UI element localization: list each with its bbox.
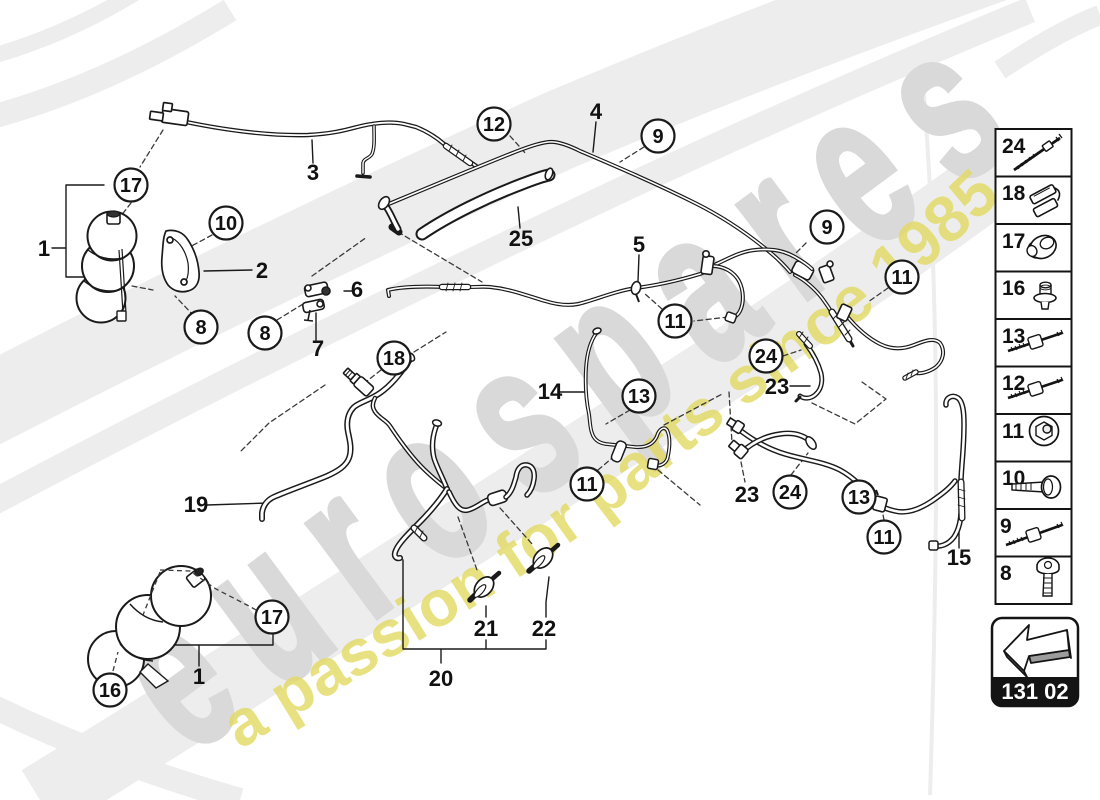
svg-text:12: 12 (1002, 372, 1025, 395)
svg-text:25: 25 (509, 226, 533, 251)
svg-text:24: 24 (1002, 135, 1026, 158)
svg-text:3: 3 (307, 160, 319, 185)
svg-text:21: 21 (474, 616, 498, 641)
svg-text:12: 12 (483, 114, 505, 136)
svg-text:17: 17 (261, 607, 283, 629)
svg-text:11: 11 (873, 527, 894, 549)
svg-text:11: 11 (576, 474, 597, 496)
svg-text:13: 13 (628, 386, 650, 408)
svg-text:13: 13 (848, 487, 870, 509)
svg-text:14: 14 (538, 379, 563, 404)
svg-text:1: 1 (38, 236, 50, 261)
svg-text:5: 5 (633, 232, 645, 257)
svg-text:131 02: 131 02 (1001, 679, 1068, 704)
svg-text:8: 8 (195, 317, 206, 339)
svg-text:23: 23 (735, 482, 759, 507)
svg-text:9: 9 (821, 217, 832, 239)
svg-text:23: 23 (765, 374, 789, 399)
svg-text:8: 8 (259, 323, 270, 345)
svg-text:22: 22 (532, 616, 556, 641)
svg-text:24: 24 (755, 346, 778, 368)
svg-text:9: 9 (1000, 515, 1012, 538)
svg-text:11: 11 (664, 311, 685, 333)
svg-text:7: 7 (312, 336, 324, 361)
svg-text:17: 17 (1002, 230, 1025, 253)
svg-text:18: 18 (1002, 182, 1026, 205)
svg-text:4: 4 (590, 99, 603, 124)
svg-text:11: 11 (1002, 420, 1025, 443)
svg-text:19: 19 (184, 492, 208, 517)
svg-text:8: 8 (1000, 562, 1012, 585)
svg-text:16: 16 (99, 680, 121, 702)
svg-text:9: 9 (652, 126, 663, 148)
svg-text:24: 24 (779, 482, 802, 504)
svg-text:15: 15 (947, 545, 971, 570)
svg-text:10: 10 (215, 213, 237, 235)
svg-text:16: 16 (1002, 277, 1025, 300)
svg-text:2: 2 (256, 258, 268, 283)
svg-text:20: 20 (429, 666, 453, 691)
svg-text:18: 18 (383, 348, 405, 370)
svg-text:13: 13 (1002, 325, 1025, 348)
svg-text:1: 1 (193, 664, 205, 689)
svg-text:11: 11 (891, 267, 912, 289)
svg-text:17: 17 (120, 175, 142, 197)
svg-text:6: 6 (351, 277, 363, 302)
